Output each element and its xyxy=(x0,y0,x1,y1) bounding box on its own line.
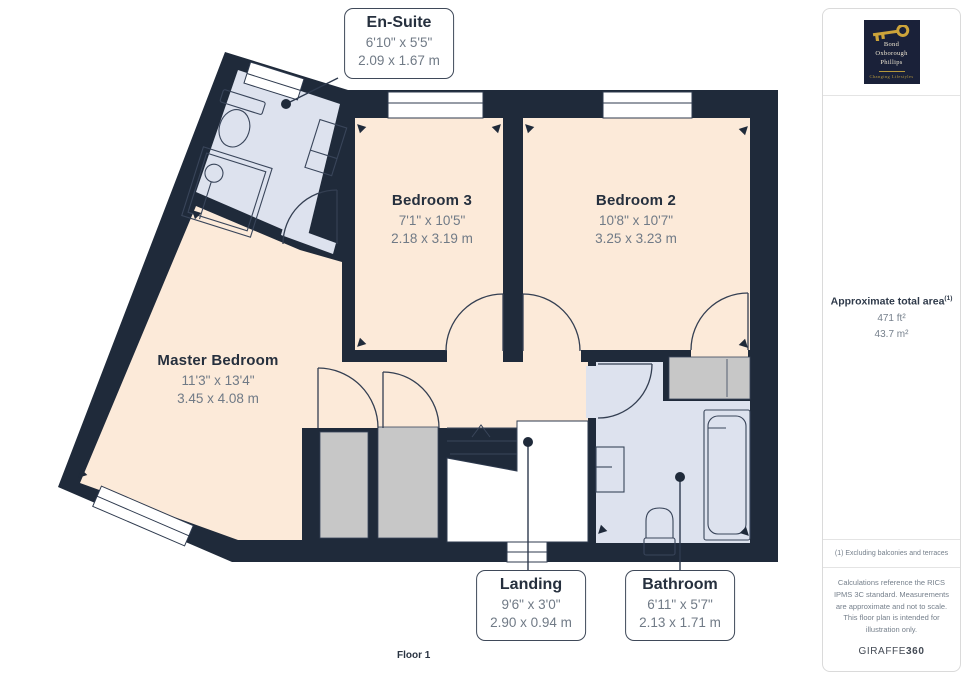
room-dim-metric: 3.25 x 3.23 m xyxy=(595,230,677,248)
logo-text-line: Bond xyxy=(884,41,899,50)
cupboard xyxy=(669,357,750,399)
room-dim-imperial: 6'11" x 5'7" xyxy=(639,596,721,614)
room-dim-metric: 2.09 x 1.67 m xyxy=(358,52,440,70)
room-label-bedroom2: Bedroom 2 10'8" x 10'7" 3.25 x 3.23 m xyxy=(595,192,677,248)
room-label-bedroom3: Bedroom 3 7'1" x 10'5" 2.18 x 3.19 m xyxy=(391,192,473,248)
room-floor-landing xyxy=(318,362,588,428)
wardrobe xyxy=(320,432,368,538)
room-dim-metric: 2.18 x 3.19 m xyxy=(391,230,473,248)
logo-text-line: Phillips xyxy=(880,59,902,68)
wardrobe xyxy=(378,427,438,538)
room-name: Bathroom xyxy=(639,576,721,594)
room-dim-imperial: 7'1" x 10'5" xyxy=(391,212,473,230)
room-dim-imperial: 11'3" x 13'4" xyxy=(157,372,278,390)
room-dim-metric: 2.90 x 0.94 m xyxy=(490,614,572,632)
callout-ensuite: En-Suite 6'10" x 5'5" 2.09 x 1.67 m xyxy=(344,8,454,79)
agency-logo: Bond Oxborough Phillips Changing Lifesty… xyxy=(823,9,960,95)
area-sqm: 43.7 m² xyxy=(875,329,909,340)
room-dim-metric: 3.45 x 4.08 m xyxy=(157,390,278,408)
disclaimer-text: Calculations reference the RICS IPMS 3C … xyxy=(834,578,949,634)
window xyxy=(388,92,483,118)
giraffe360-brand: GIRAFFE360 xyxy=(833,644,950,660)
room-name: En-Suite xyxy=(358,14,440,32)
callout-bathroom: Bathroom 6'11" x 5'7" 2.13 x 1.71 m xyxy=(625,570,735,641)
room-dim-metric: 2.13 x 1.71 m xyxy=(639,614,721,632)
room-label-master: Master Bedroom 11'3" x 13'4" 3.45 x 4.08… xyxy=(157,352,278,408)
floor-label: Floor 1 xyxy=(397,650,430,661)
room-dim-imperial: 9'6" x 3'0" xyxy=(490,596,572,614)
area-footnote-marker: (1) xyxy=(944,295,952,302)
room-dim-imperial: 10'8" x 10'7" xyxy=(595,212,677,230)
area-footnote: (1) Excluding balconies and terraces xyxy=(823,540,960,567)
logo-tagline: Changing Lifestyles xyxy=(870,74,914,79)
logo-text-line: Oxborough xyxy=(875,50,907,59)
room-name: Bedroom 2 xyxy=(595,192,677,209)
window xyxy=(603,92,692,118)
info-sidebar: Bond Oxborough Phillips Changing Lifesty… xyxy=(822,8,961,672)
room-dim-imperial: 6'10" x 5'5" xyxy=(358,34,440,52)
callout-landing: Landing 9'6" x 3'0" 2.90 x 0.94 m xyxy=(476,570,586,641)
area-title: Approximate total area xyxy=(831,296,945,308)
window xyxy=(507,542,547,562)
total-area-section: Approximate total area(1) 471 ft² 43.7 m… xyxy=(823,96,960,539)
room-name: Bedroom 3 xyxy=(391,192,473,209)
area-sqft: 471 ft² xyxy=(877,313,905,324)
disclaimer-section: Calculations reference the RICS IPMS 3C … xyxy=(823,568,960,671)
logo-divider xyxy=(879,71,905,72)
key-icon xyxy=(872,25,912,41)
room-name: Landing xyxy=(490,576,572,594)
room-name: Master Bedroom xyxy=(157,352,278,369)
